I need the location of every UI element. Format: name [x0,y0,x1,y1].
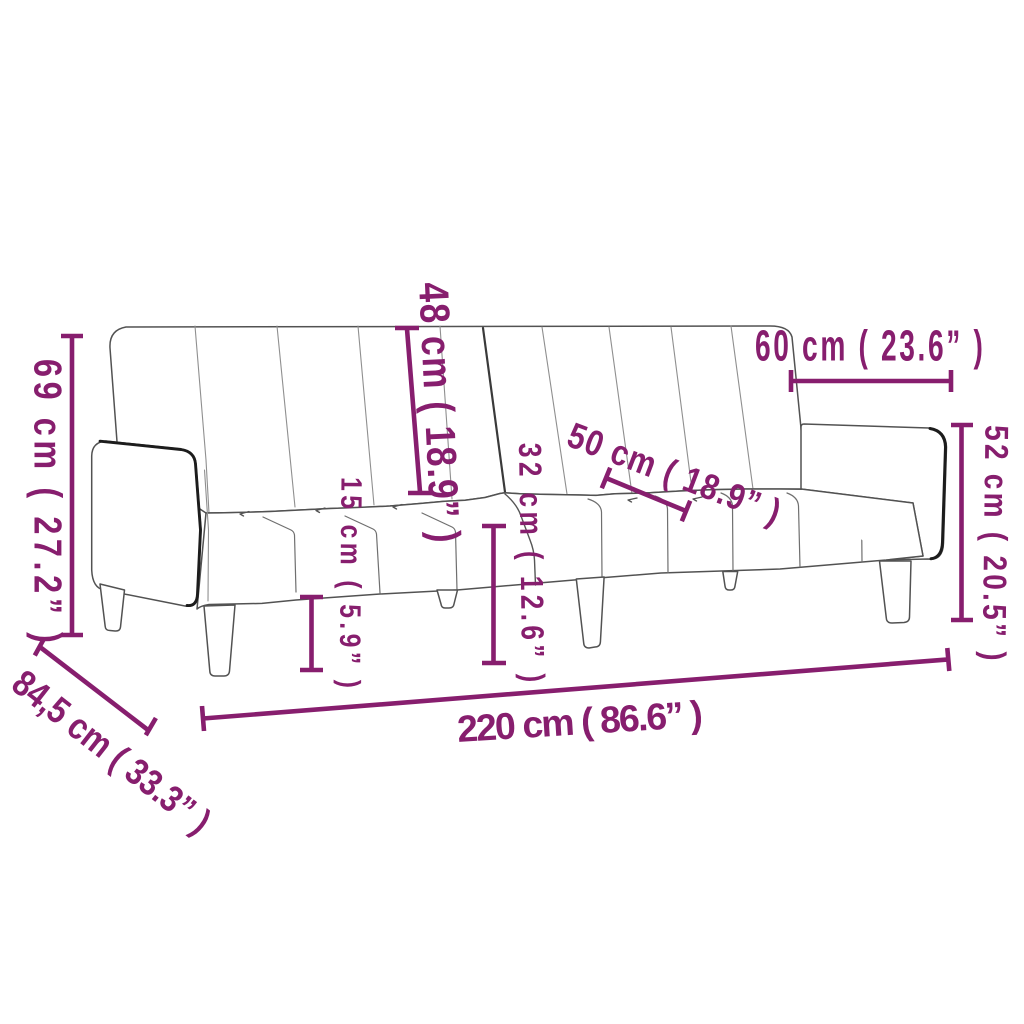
svg-text:52 cm ( 20.5” ): 52 cm ( 20.5” ) [975,425,1015,661]
svg-text:220 cm ( 86.6” ): 220 cm ( 86.6” ) [456,693,704,750]
svg-text:69 cm ( 27.2” ): 69 cm ( 27.2” ) [26,359,70,643]
svg-text:15 cm ( 5.9” ): 15 cm ( 5.9” ) [333,477,368,688]
svg-text:84,5 cm ( 33.3” ): 84,5 cm ( 33.3” ) [4,663,218,843]
